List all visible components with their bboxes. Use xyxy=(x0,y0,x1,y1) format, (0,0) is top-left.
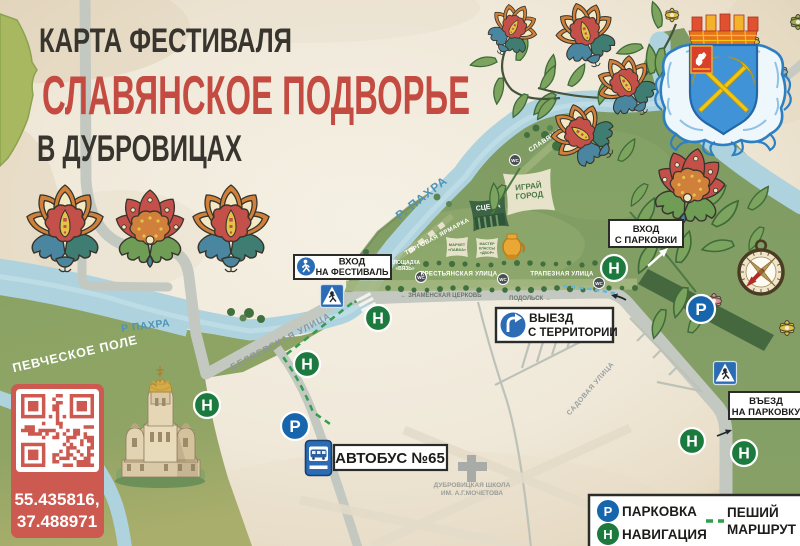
svg-text:В ДУБРОВИЦАХ: В ДУБРОВИЦАХ xyxy=(37,128,242,169)
svg-text:«ВЯЗЬ»: «ВЯЗЬ» xyxy=(395,266,415,272)
svg-text:WC: WC xyxy=(595,281,603,286)
svg-text:Р: Р xyxy=(604,504,613,519)
svg-text:ПАРКОВКА: ПАРКОВКА xyxy=(622,504,697,519)
svg-text:Н: Н xyxy=(603,527,612,542)
svg-text:ДУБРОВИЦКАЯ ШКОЛА: ДУБРОВИЦКАЯ ШКОЛА xyxy=(434,482,511,489)
svg-text:37.488971: 37.488971 xyxy=(17,512,97,531)
svg-text:НА ПАРКОВКУ: НА ПАРКОВКУ xyxy=(732,407,800,418)
svg-text:ТРАПЕЗНАЯ УЛИЦА: ТРАПЕЗНАЯ УЛИЦА xyxy=(530,272,594,278)
svg-text:КРЕСТЬЯНСКАЯ УЛИЦА: КРЕСТЬЯНСКАЯ УЛИЦА xyxy=(421,272,498,278)
svg-text:ПОДОЛЬСК →: ПОДОЛЬСК → xyxy=(509,296,551,302)
svg-text:ПЕШИЙ: ПЕШИЙ xyxy=(727,505,779,520)
svg-text:МАСТЕР: МАСТЕР xyxy=(480,242,496,246)
svg-text:СЛАВЯНСКОЕ ПОДВОРЬЕ: СЛАВЯНСКОЕ ПОДВОРЬЕ xyxy=(42,64,470,126)
svg-text:МАРШРУТ: МАРШРУТ xyxy=(727,522,797,537)
svg-text:«ЛАВКА»: «ЛАВКА» xyxy=(448,247,467,252)
svg-text:ВЫЕЗД: ВЫЕЗД xyxy=(529,311,574,325)
svg-text:55.435816,: 55.435816, xyxy=(14,490,99,509)
svg-text:С ПАРКОВКИ: С ПАРКОВКИ xyxy=(615,235,677,246)
svg-text:← ЗНАМЕНСКАЯ ЦЕРКОВЬ: ← ЗНАМЕНСКАЯ ЦЕРКОВЬ xyxy=(400,293,482,299)
svg-text:КЛАССЫ: КЛАССЫ xyxy=(479,247,495,251)
svg-text:WC: WC xyxy=(511,158,519,163)
svg-text:WC: WC xyxy=(499,277,507,282)
svg-text:ВХОД: ВХОД xyxy=(633,224,660,235)
svg-text:КАРТА ФЕСТИВАЛЯ: КАРТА ФЕСТИВАЛЯ xyxy=(39,22,292,60)
svg-text:АВТОБУС №65: АВТОБУС №65 xyxy=(335,450,445,467)
svg-text:«ДВОР»: «ДВОР» xyxy=(480,251,494,255)
svg-text:ВХОД: ВХОД xyxy=(339,257,366,268)
svg-text:НА ФЕСТИВАЛЬ: НА ФЕСТИВАЛЬ xyxy=(316,267,389,277)
svg-text:НАВИГАЦИЯ: НАВИГАЦИЯ xyxy=(622,527,707,542)
svg-text:С ТЕРРИТОРИИ: С ТЕРРИТОРИИ xyxy=(528,327,618,339)
svg-text:ИМ. А.Г.МОЧЕТОВА: ИМ. А.Г.МОЧЕТОВА xyxy=(441,490,503,497)
svg-text:ВЪЕЗД: ВЪЕЗД xyxy=(749,396,783,407)
